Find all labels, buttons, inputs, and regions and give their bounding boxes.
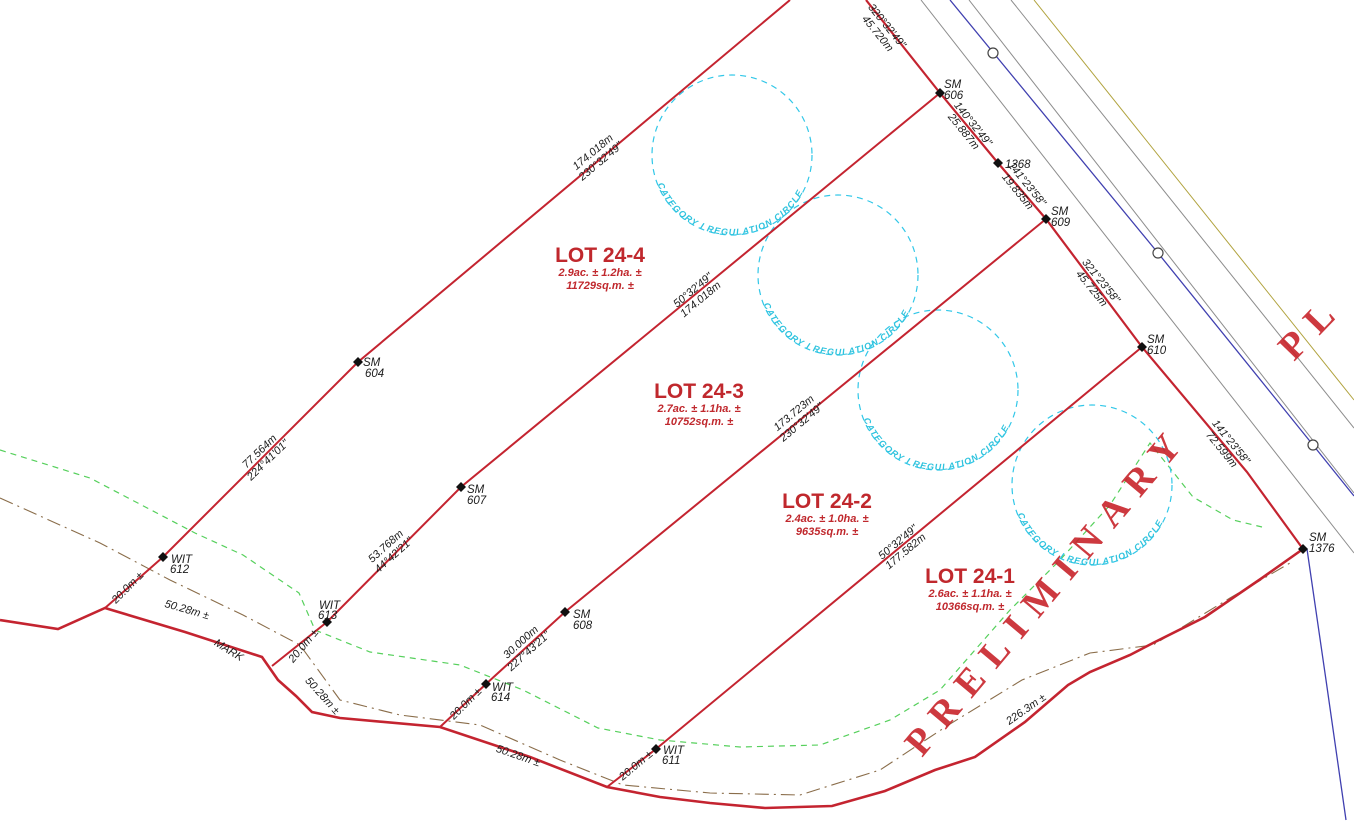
- survey-marker: WIT 613: [318, 600, 341, 627]
- lot-area-sqm: 11729sq.m. ±: [566, 280, 634, 292]
- marker-number: 611: [662, 755, 680, 767]
- marker-number: 1376: [1309, 543, 1335, 555]
- survey-marker: WIT 612: [158, 552, 193, 576]
- offset-label: 20.0m ±: [286, 627, 321, 666]
- lot-area-sqm: 10366sq.m. ±: [936, 601, 1004, 613]
- marker-number: 1368: [1005, 159, 1031, 171]
- utility-pole-icon: [988, 48, 998, 58]
- offset-label: 20.0m ±: [109, 570, 146, 607]
- lot-area-sqm: 9635sq.m. ±: [796, 526, 858, 538]
- regulation-circle-label-text: CATEGORY I REGULATION CIRCLE: [862, 416, 1011, 472]
- lot-name: LOT 24-4: [555, 244, 645, 267]
- lot-label-24-1: LOT 24-1 2.6ac. ± 1.1ha. ± 10366sq.m. ±: [925, 565, 1015, 613]
- shoreline-boundary: [0, 549, 1303, 808]
- plan-watermark-partial-text: PL: [1270, 285, 1352, 368]
- offset-label: 20.0m ±: [447, 686, 484, 723]
- regulation-circle-label: CATEGORY I REGULATION CIRCLE: [656, 181, 805, 237]
- shore-distance-label: 50.28m ±: [302, 675, 342, 717]
- lot-label-24-4: LOT 24-4 2.9ac. ± 1.2ha. ± 11729sq.m. ±: [555, 244, 645, 292]
- lot-area: 2.9ac. ± 1.2ha. ±: [557, 267, 641, 279]
- regulation-circle-label-text: CATEGORY I REGULATION CIRCLE: [656, 181, 805, 237]
- shore-distance-text: 50.28m ±: [163, 598, 210, 622]
- dimension-label: 321°23'58" 45.725m: [1070, 257, 1123, 314]
- survey-marker: SM 608: [560, 607, 593, 632]
- survey-plat-drawing: CATEGORY I REGULATION CIRCLE CATEGORY I …: [0, 0, 1354, 833]
- utility-pole-icon: [1308, 440, 1318, 450]
- regulation-circle-label: CATEGORY I REGULATION CIRCLE: [862, 416, 1011, 472]
- lot-area: 2.6ac. ± 1.1ha. ±: [927, 588, 1011, 600]
- dimension-label: 320°32'49" 45.720m: [856, 2, 909, 59]
- marker-number: 607: [467, 495, 487, 507]
- offset-distance-text: 20.0m ±: [109, 570, 146, 607]
- utility-pole-icon: [1153, 248, 1163, 258]
- marker-number: 612: [170, 564, 190, 576]
- lot-name: LOT 24-2: [782, 490, 872, 513]
- survey-marker: SM 607: [456, 482, 487, 507]
- marker-number: 608: [573, 620, 593, 632]
- survey-plat-canvas: CATEGORY I REGULATION CIRCLE CATEGORY I …: [0, 0, 1354, 833]
- survey-markers: SM 604 SM 606 1368 SM 609 SM 610 SM 1376: [158, 79, 1335, 767]
- marker-number: 609: [1051, 217, 1071, 229]
- offset-distance-text: 20.0m ±: [447, 686, 484, 723]
- lot-name: LOT 24-1: [925, 565, 1015, 588]
- road-lines: [921, 0, 1354, 820]
- shore-distance-label: 50.28m ±: [163, 598, 210, 622]
- offset-distance-text: 20.0m ±: [616, 748, 655, 783]
- marker-number: 606: [944, 90, 964, 102]
- water-mark-label: MARK: [212, 637, 246, 664]
- survey-marker: SM 606: [935, 79, 964, 102]
- shore-distance-text: 50.28m ±: [494, 743, 541, 769]
- marker-number: 610: [1147, 345, 1167, 357]
- water-mark-text: MARK: [212, 637, 246, 664]
- dimension-label: 53.768m 44°42'21": [364, 526, 416, 576]
- survey-marker: WIT 611: [651, 744, 685, 767]
- lot-area-sqm: 10752sq.m. ±: [665, 416, 733, 428]
- survey-marker: WIT 614: [481, 679, 514, 704]
- vegetation-line: [0, 443, 1262, 747]
- utility-line-lower: [1307, 549, 1346, 820]
- shore-distance-text: 50.28m ±: [302, 675, 342, 717]
- dimension-label: 173.723m 230°32'49": [769, 391, 827, 445]
- lot-name: LOT 24-3: [654, 380, 744, 403]
- marker-number: 604: [365, 368, 384, 380]
- marker-number: 614: [491, 692, 510, 704]
- natural-feature-lines: [0, 443, 1290, 795]
- lot-area: 2.4ac. ± 1.0ha. ±: [784, 513, 868, 525]
- survey-marker: SM 609: [1041, 206, 1071, 229]
- shore-distance-label: 50.28m ±: [494, 743, 541, 769]
- survey-marker: SM 610: [1137, 334, 1167, 357]
- regulation-circles: CATEGORY I REGULATION CIRCLE CATEGORY I …: [652, 75, 1172, 567]
- lot-label-24-2: LOT 24-2 2.4ac. ± 1.0ha. ± 9635sq.m. ±: [782, 490, 872, 538]
- lot-label-24-3: LOT 24-3 2.7ac. ± 1.1ha. ± 10752sq.m. ±: [654, 380, 744, 428]
- dimension-label: 174.018m 230°32'49": [568, 130, 626, 184]
- marker-number: 613: [318, 610, 338, 622]
- survey-marker: 1368: [993, 158, 1031, 171]
- offset-distance-text: 20.0m ±: [286, 627, 321, 666]
- survey-marker: SM 604: [353, 357, 384, 380]
- lot-area: 2.7ac. ± 1.1ha. ±: [656, 403, 740, 415]
- offset-label: 20.0m ±: [616, 748, 655, 783]
- road-edge-line: [969, 0, 1354, 493]
- survey-marker: SM 1376: [1298, 532, 1335, 555]
